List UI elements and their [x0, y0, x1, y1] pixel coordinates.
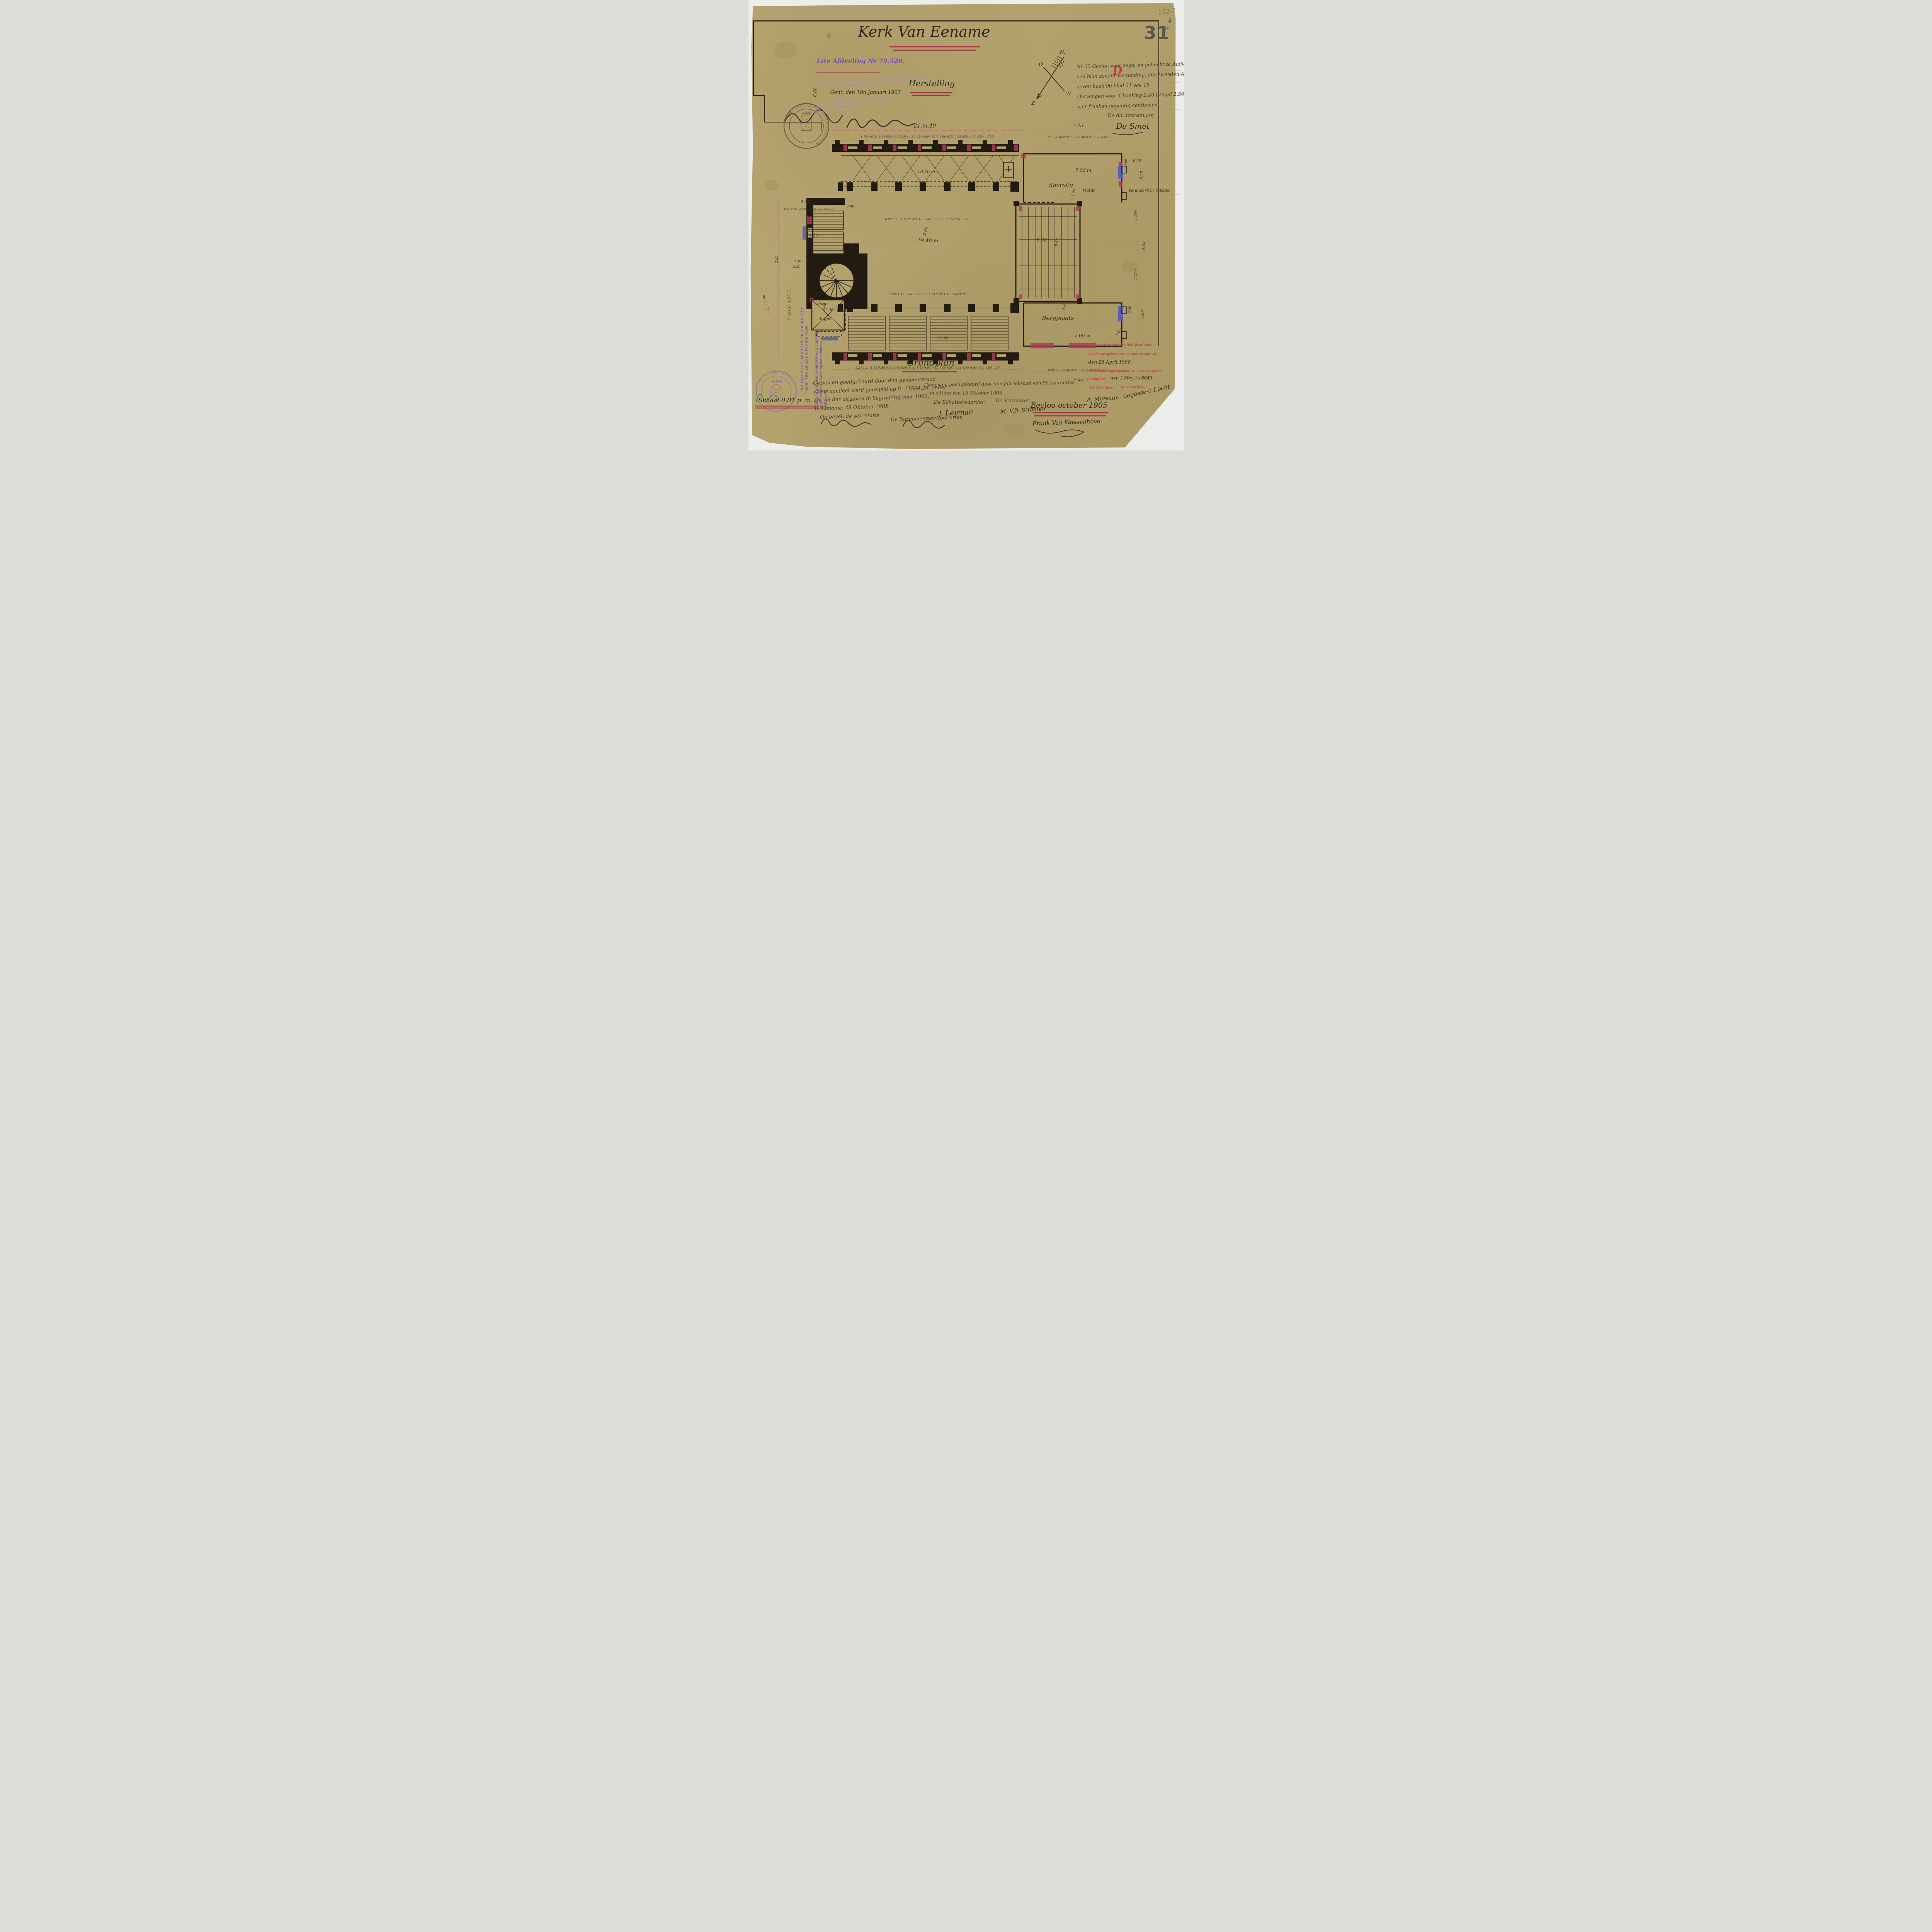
sheet-number-stamp: 31 — [1144, 22, 1170, 43]
dim-top-right-total: 7.45 — [1073, 123, 1083, 128]
justice-nl-line1: GEZIEN DOOR ONS, MINISTER VAN JUSTITIE — [815, 294, 819, 410]
dim-left-v2: 6.90 — [763, 295, 767, 303]
dim-right-e: 5.25 — [1141, 310, 1145, 318]
window-note-a: Wordt — [1083, 189, 1095, 193]
deputation-line7: De Griffier der Provincie, — [803, 110, 858, 115]
dim-left-chain: 0.55 0.50 0.55 0.70 0.55 0.50 0.55 35 — [782, 208, 837, 211]
commission-writer-label: De Schrijver, — [1090, 386, 1114, 390]
justice-stamp-fr: VU PAR NOUS, MINISTRE DE LA JUSTICE pour… — [800, 270, 809, 390]
receiver-label: De dd. Ontvanger, — [1108, 113, 1154, 119]
justice-stamp-nl: GEZIEN DOOR ONS, MINISTER VAN JUSTITIE o… — [815, 294, 828, 410]
dim-right-h: 0.90 — [1133, 159, 1141, 163]
scanned-drawing: PROVINCIE OOST-VLAANDEREN MINISTERE DE L… — [748, 0, 1184, 451]
dim-right-i: 4.00 — [1124, 159, 1128, 166]
compass-east-label: O — [1039, 62, 1043, 68]
deputation-ref: 1ste Afdeeling Nr 79.520. — [816, 57, 905, 65]
dim-left-height: 6.60 — [812, 87, 817, 97]
dim-aisle-length: 19.40 m — [918, 169, 935, 174]
dim-nave-length: 19.40 m — [918, 238, 939, 244]
justice-fr-line2: pour être annexé à l'arrêté royal — [804, 270, 809, 390]
receiver-flourish — [1112, 132, 1143, 135]
dim-choir-width: 6.70 — [1037, 237, 1047, 243]
board-line2: in zitting van 15 Oktober 1905 — [930, 390, 1002, 396]
architect-flourish — [1035, 430, 1084, 437]
plan-caption: Grondplan — [900, 358, 962, 368]
deputation-date: Gent, den 18n Januari 1907 — [830, 90, 901, 95]
justice-nl-line2: om gevoegd te worden bij het koninklijk — [819, 294, 823, 410]
dim-nave-upper-chain: 0.90 2.60 1.15 2.56 1.15 2.60 1.15 2.60 … — [838, 218, 1016, 221]
compass-north-label: N. — [1060, 49, 1066, 55]
west-window — [803, 226, 806, 240]
justice-fr-line1: VU PAR NOUS, MINISTRE DE LA JUSTICE — [800, 270, 804, 390]
church-plan — [803, 140, 1126, 364]
dim-right-d: 3.27½ — [1134, 269, 1138, 280]
dim-right-top-chain: 0.88 0.90 0.88 0.85 0.88 0.90 0.88 0.85 — [1024, 136, 1133, 139]
dim-right-f: 2.00 — [1128, 306, 1132, 313]
board-chairman-label: De Voorzitter — [996, 398, 1030, 404]
dim-left-door: 0.90 — [847, 205, 854, 209]
dim-pew-length: 19.40 — [938, 336, 949, 340]
choir-room — [1014, 201, 1082, 304]
dim-bottom-right-total: 7.45 — [1074, 377, 1084, 383]
justice-nl-line3: besluit van — [823, 294, 828, 410]
dim-nave-lower-chain: 2.60 1.19 2.60 1.14 2.60 1.19 2.60 1.19 … — [841, 293, 1015, 296]
dim-chapel-out: 2.80 — [793, 265, 801, 269]
storage-room — [1024, 303, 1123, 348]
board-treasurer-label: De Schatbewaarder — [934, 400, 985, 405]
deputation-line5: De Gouverneur-Voorzitter — [838, 97, 894, 102]
registration-note: Nr 55 Gezien voor zegel en geboekt te Au… — [1076, 59, 1182, 112]
compass-south-label: Z — [1032, 100, 1035, 106]
dim-right-c: 8.65 — [1141, 241, 1146, 251]
dim-right-b: 3.32½ — [1134, 210, 1138, 221]
commission-line3: voorbehoudingen gedaan en vermeld in het — [1087, 369, 1162, 373]
scale-note: Schaal 0.01 p. m. — [759, 396, 813, 404]
receiver-signature: De Smet — [1116, 121, 1150, 131]
commission-date2: den 2 Mey 1o 8649. — [1111, 376, 1154, 381]
dim-right-a: 5.25 — [1140, 171, 1144, 179]
drawing-title: Kerk Van Eename — [847, 23, 1002, 40]
sacristy-window — [1118, 166, 1123, 179]
dim-left-top: 5.80 — [801, 199, 811, 204]
place-date: Eecloo october 1905 — [1027, 401, 1112, 410]
dim-left-v1: 2.35 — [775, 255, 779, 263]
justice-handwritten-date: 7 août 1907. — [786, 274, 792, 321]
compass-west-label: W. — [1066, 91, 1072, 97]
commission-date1: den 28 April 1906. — [1088, 359, 1132, 365]
dim-storage-width: 7.00 m — [1075, 333, 1091, 338]
dim-top-total: 21.m.40 — [914, 123, 936, 129]
justice-stamp-icon: MINISTERE DE LA JUSTICE — [756, 371, 797, 411]
south-pews — [848, 316, 1008, 350]
deputation-line3: van den Provincieraad — [828, 83, 876, 88]
commission-line1: Gezien door den Koninklijken Raad — [1090, 343, 1153, 347]
dim-chapel-top: 2.30 — [794, 260, 801, 264]
dim-sacristy-width: 7.00 m — [1075, 168, 1092, 173]
window-note-b: Veranderd in Venster — [1129, 189, 1170, 193]
dim-left-v3: 2.50 — [766, 307, 770, 314]
council-note: Gezien en goedgekeurd door den gemeenter… — [813, 375, 947, 413]
dim-pass2: 1.00 — [837, 309, 844, 313]
dim-pew-width: 4.80 m — [810, 233, 823, 238]
storage-label: Bergplaats — [1042, 315, 1074, 321]
dim-top-chain: 1.76½ 62½ 1.60 62½ 0.88 62½ 1.60 62½ 0.9… — [832, 135, 1024, 138]
sacristy-label: Sacristy — [1049, 182, 1073, 189]
deputation-signature-2 — [847, 119, 914, 128]
commission-line4: verslag van — [1087, 377, 1107, 381]
commission-line2: voor Kunstgebouwen in zijne zitting van — [1088, 352, 1158, 356]
north-wall — [832, 140, 1019, 152]
